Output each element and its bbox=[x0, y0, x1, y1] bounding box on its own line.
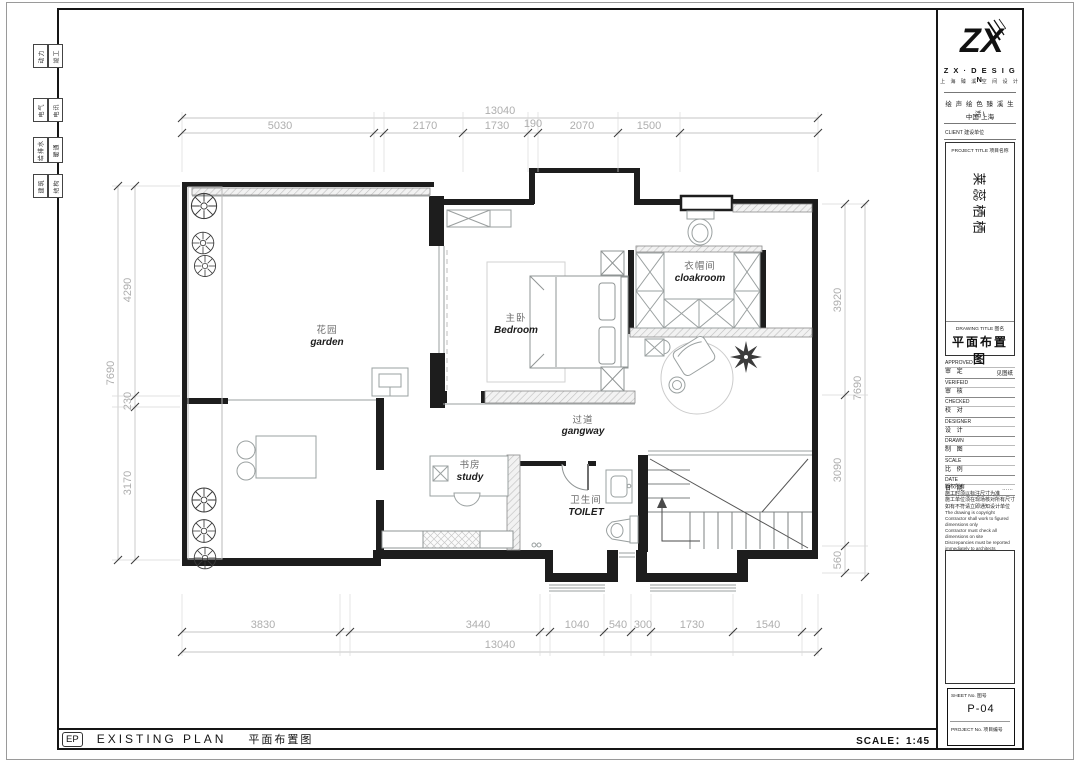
sheet-number: P-04 bbox=[948, 703, 1014, 715]
divider bbox=[944, 123, 1016, 124]
dim-top-total: 13040 bbox=[485, 105, 516, 117]
dim-bottom-total: 13040 bbox=[485, 639, 516, 651]
svg-text:560: 560 bbox=[832, 551, 844, 569]
svg-text:5030: 5030 bbox=[268, 120, 292, 132]
svg-text:2170: 2170 bbox=[413, 120, 437, 132]
door-arc bbox=[562, 464, 588, 490]
project-title-label: PROJECT TITLE 项目名称 bbox=[946, 147, 1014, 154]
svg-text:1730: 1730 bbox=[485, 120, 509, 132]
label-cloakroom-cn: 衣帽间 bbox=[684, 260, 716, 272]
dimension-lines bbox=[118, 118, 865, 652]
top-cabinet bbox=[447, 210, 511, 227]
side-table bbox=[669, 377, 685, 393]
stair-direction-arrow bbox=[662, 505, 700, 541]
nightstand bbox=[601, 367, 624, 391]
label-study-en: study bbox=[457, 472, 484, 483]
plan-code-badge: EP bbox=[62, 732, 83, 747]
footer-title-en: EXISTING PLAN bbox=[97, 732, 227, 746]
svg-text:190: 190 bbox=[524, 118, 542, 130]
copyright-notes: 版权所有 施工时须以标注尺寸为准 施工单位须在现场核对所有尺寸 如有不符请立即通… bbox=[945, 484, 1015, 552]
svg-text:1040: 1040 bbox=[565, 619, 589, 631]
sheet-number-box: SHEET No. 图号 P-04 PROJECT No. 项目编号 bbox=[947, 688, 1015, 746]
sink-icon bbox=[606, 470, 632, 503]
svg-text:1540: 1540 bbox=[756, 619, 780, 631]
project-no-label: PROJECT No. 项目编号 bbox=[951, 726, 1011, 733]
drawing-title-label: DRAWING TITLE 图名 bbox=[946, 321, 1014, 332]
title-block: ZX Z X · D E S I G N 上 海 臻 溪 空 间 设 计 绘 声… bbox=[940, 10, 1020, 744]
sheet-no-label: SHEET No. 图号 bbox=[951, 692, 1011, 699]
drawing-sheet: 动力 竣工 电气 电讯 给排水 暖通 建筑 结构 bbox=[0, 0, 1080, 764]
dim-left-total: 7690 bbox=[105, 361, 117, 385]
label-garden-en: garden bbox=[309, 337, 343, 348]
label-cloakroom-en: cloakroom bbox=[675, 273, 726, 284]
plant-icon bbox=[730, 341, 762, 373]
divider bbox=[950, 721, 1010, 722]
lounge-furniture bbox=[645, 335, 733, 414]
footer-title-cn: 平面布置图 bbox=[248, 731, 313, 747]
svg-text:1730: 1730 bbox=[680, 619, 704, 631]
divider bbox=[944, 139, 1016, 140]
svg-text:3170: 3170 bbox=[122, 471, 134, 495]
label-gangway-en: gangway bbox=[561, 426, 605, 437]
study-seat-band bbox=[382, 531, 513, 548]
project-title-box: PROJECT TITLE 项目名称 莱蕊栖栖 DRAWING TITLE 图名… bbox=[945, 142, 1015, 356]
label-bedroom-cn: 主卧 bbox=[505, 312, 526, 324]
project-name: 莱蕊栖栖 bbox=[971, 171, 990, 239]
footer-scale: SCALE：1:45 bbox=[856, 732, 930, 747]
svg-text:540: 540 bbox=[609, 619, 627, 631]
dim-right-total: 7690 bbox=[852, 376, 864, 400]
svg-text:4290: 4290 bbox=[122, 278, 134, 302]
brand-cn: 上 海 臻 溪 空 间 设 计 bbox=[940, 78, 1020, 85]
revision-box bbox=[945, 550, 1015, 684]
desk-chair bbox=[454, 493, 480, 506]
garden-trees bbox=[191, 193, 216, 568]
location: 中国·上海 bbox=[940, 111, 1020, 121]
garden-table bbox=[256, 436, 316, 478]
side-cabinet bbox=[645, 339, 664, 356]
svg-text:300: 300 bbox=[634, 619, 652, 631]
bed bbox=[530, 276, 628, 368]
footer-bar: EP EXISTING PLAN 平面布置图 SCALE：1:45 bbox=[57, 728, 938, 748]
svg-text:3090: 3090 bbox=[832, 458, 844, 482]
shaft-block bbox=[681, 196, 732, 210]
svg-text:3830: 3830 bbox=[251, 619, 275, 631]
toilet-icon bbox=[687, 211, 714, 245]
client-label: CLIENT 建设单位 bbox=[945, 129, 1015, 136]
svg-text:1500: 1500 bbox=[637, 120, 661, 132]
svg-text:230: 230 bbox=[122, 392, 134, 410]
nightstand bbox=[601, 251, 624, 275]
svg-text:3440: 3440 bbox=[466, 619, 490, 631]
label-gangway-cn: 过道 bbox=[572, 414, 593, 426]
label-toilet-en: TOILET bbox=[568, 507, 604, 518]
toilet-icon bbox=[607, 516, 639, 543]
garden-chair bbox=[237, 462, 255, 480]
label-bedroom-en: Bedroom bbox=[494, 325, 538, 336]
label-toilet-cn: 卫生间 bbox=[570, 494, 602, 506]
svg-text:3920: 3920 bbox=[832, 288, 844, 312]
label-garden-cn: 花园 bbox=[316, 324, 337, 336]
divider bbox=[944, 92, 1016, 93]
label-study-cn: 书房 bbox=[459, 459, 480, 471]
sign-rows: APPROVED审 定 VERIFEID审 核 CHECKED校 对 DESIG… bbox=[945, 359, 1015, 496]
armchair bbox=[671, 335, 716, 378]
walls bbox=[182, 168, 818, 582]
staircase bbox=[648, 459, 812, 549]
garden-chair bbox=[237, 441, 255, 459]
floor-plan: 花园 garden 主卧 Bedroom 衣帽间 cloakroom 过道 ga… bbox=[0, 0, 1080, 764]
svg-text:2070: 2070 bbox=[570, 120, 594, 132]
zx-logo: ZX bbox=[954, 18, 1006, 64]
